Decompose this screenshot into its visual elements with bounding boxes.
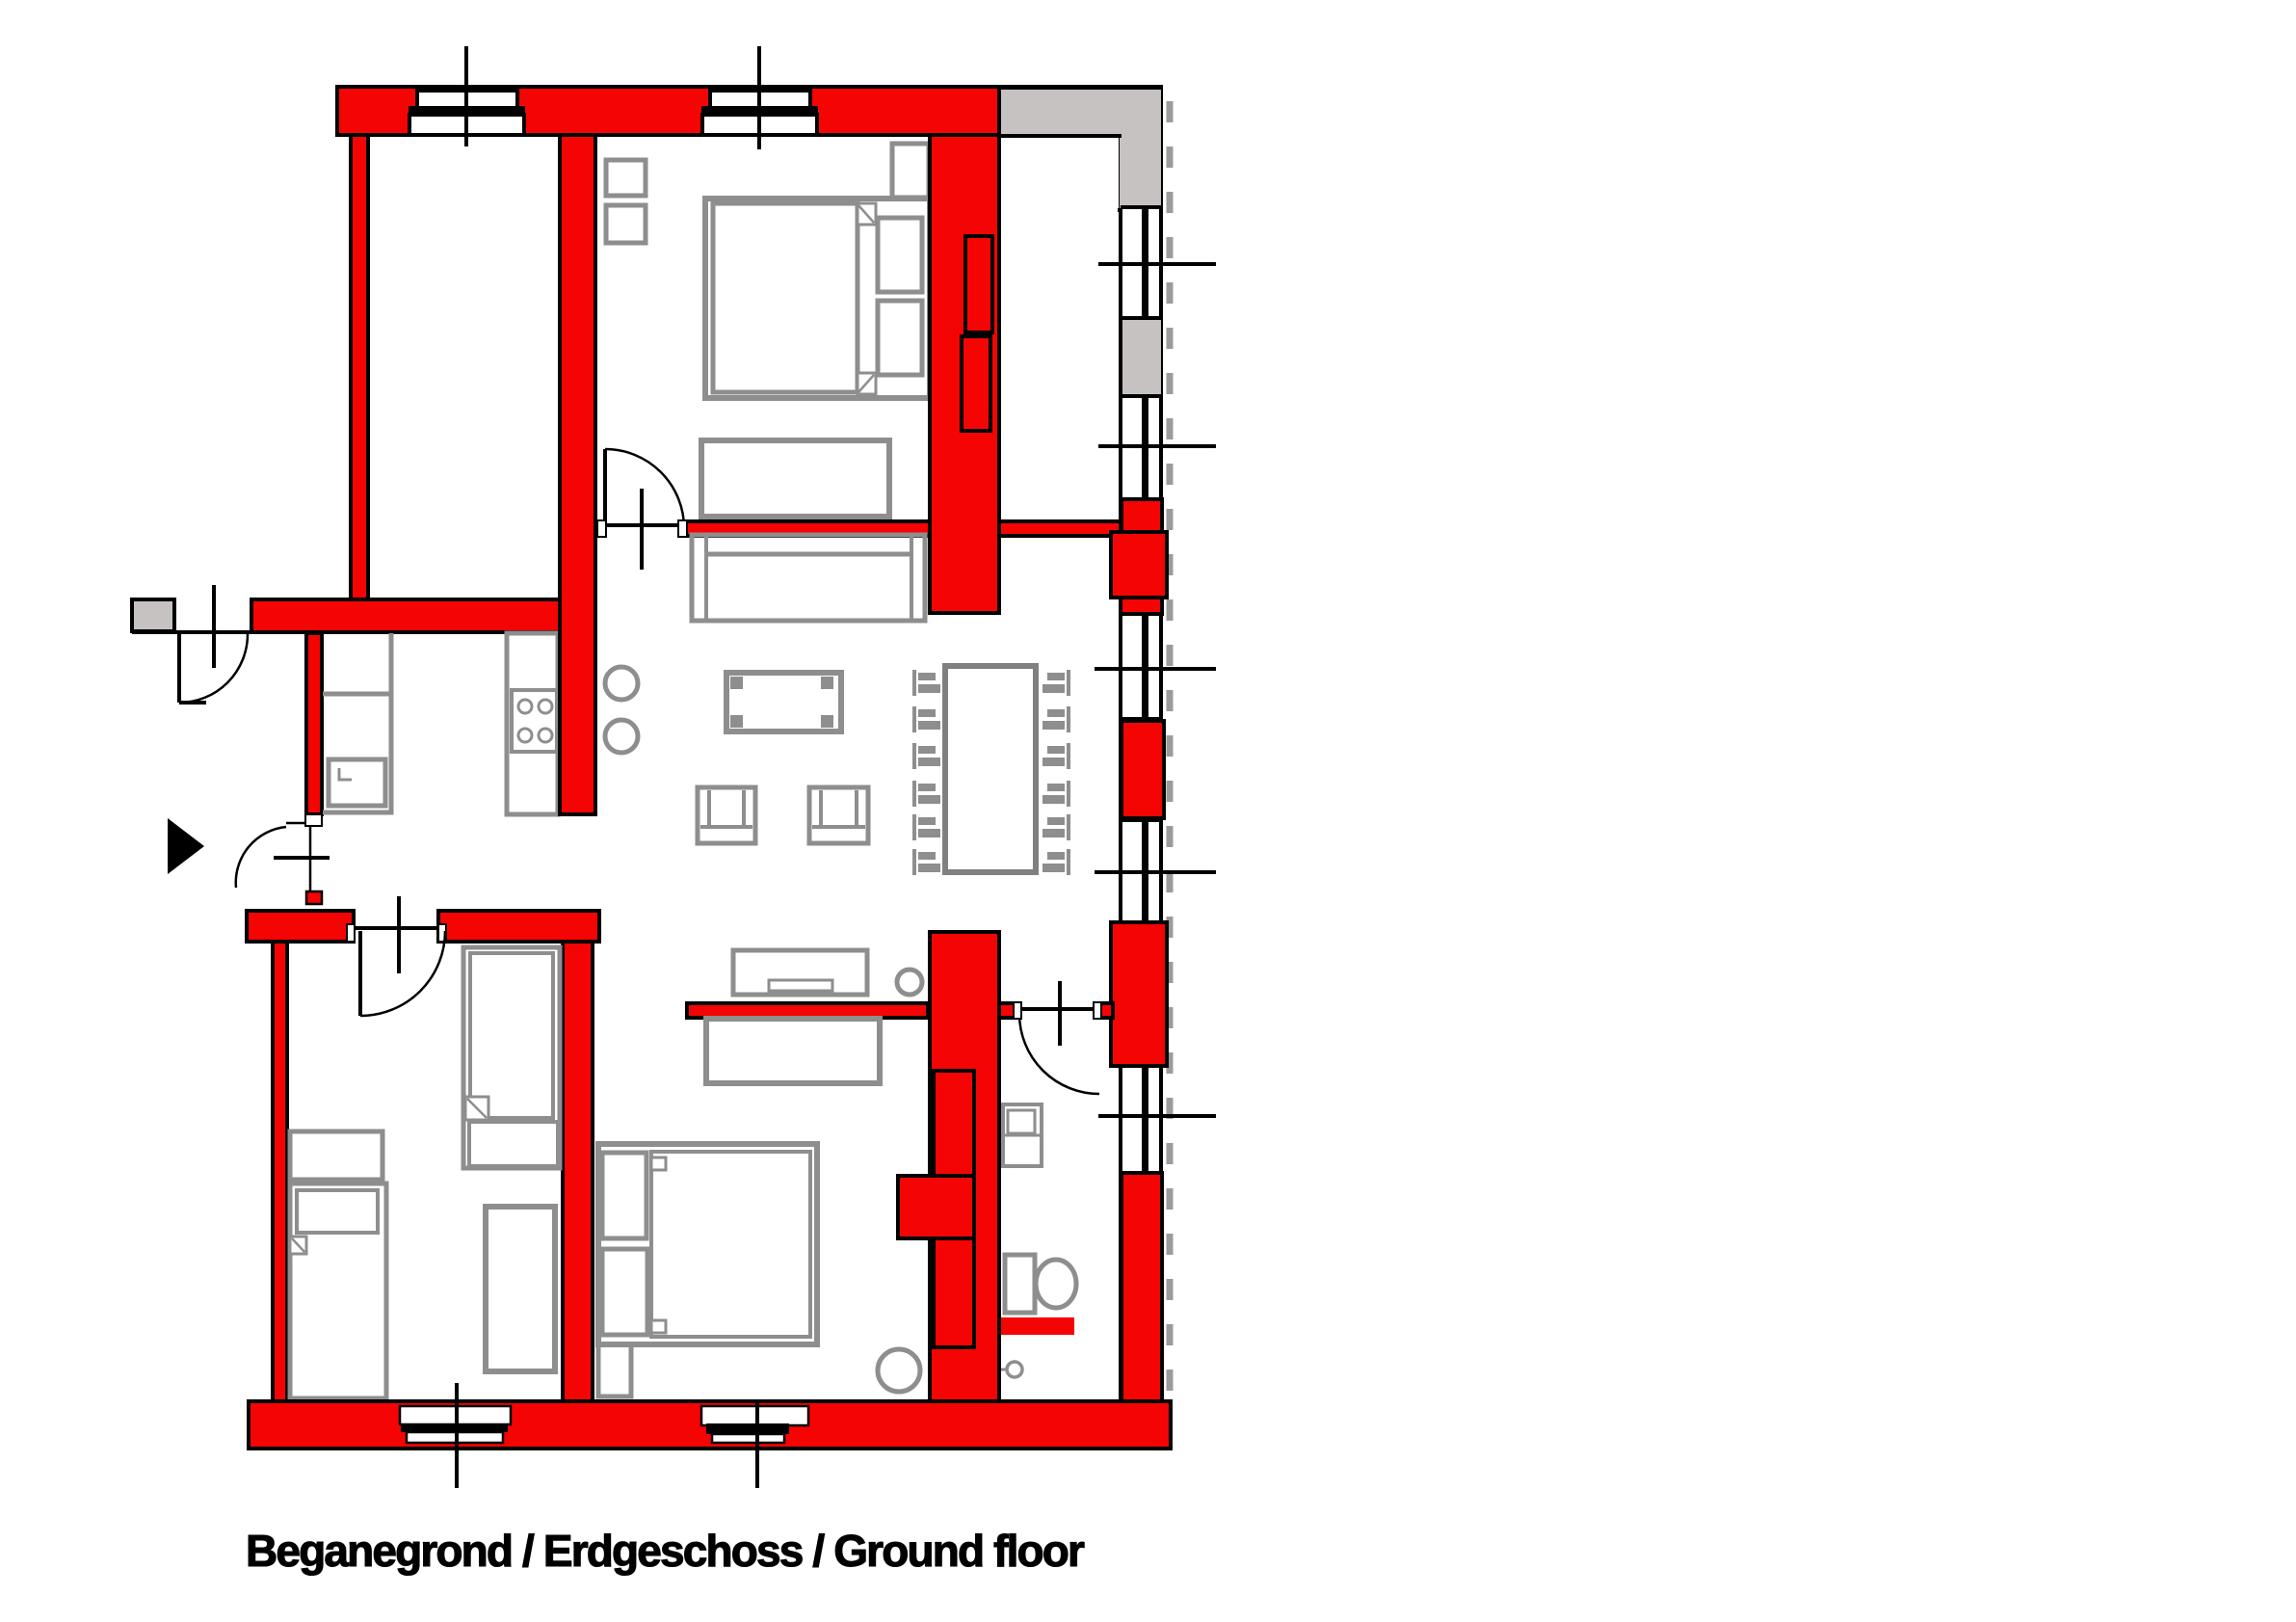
- svg-text:Beganegrond / Erdgeschoss / Gr: Beganegrond / Erdgeschoss / Ground floor: [246, 1526, 1085, 1576]
